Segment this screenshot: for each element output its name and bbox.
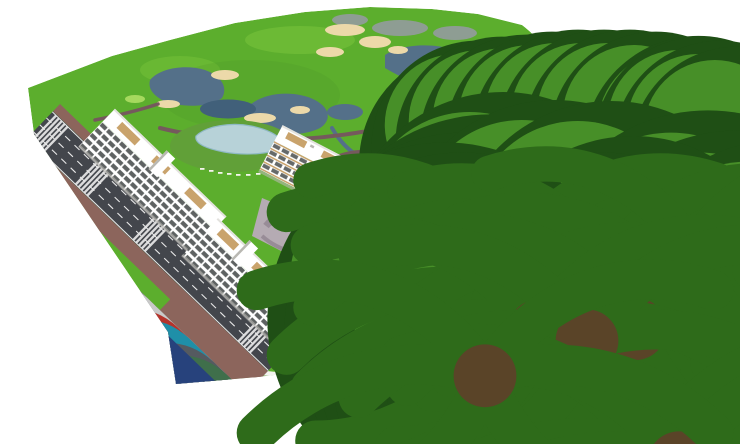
sun-lounger	[256, 173, 261, 175]
sun-lounger	[236, 174, 241, 176]
gray-waste-area	[372, 20, 428, 36]
sand-bunker	[211, 70, 239, 80]
sand-bunker	[316, 47, 344, 57]
gray-waste-area	[433, 26, 477, 40]
pond-center	[327, 104, 363, 120]
sun-lounger	[246, 174, 251, 176]
sun-lounger	[218, 172, 223, 174]
sun-lounger	[227, 173, 232, 175]
render-canvas	[0, 0, 740, 444]
sun-lounger	[209, 170, 214, 172]
sand-bunker	[290, 106, 310, 114]
sand-bunker	[325, 24, 365, 36]
sand-bunker	[359, 36, 391, 48]
aerial-render	[0, 0, 740, 444]
sand-bunker	[388, 46, 408, 54]
sun-lounger	[200, 168, 205, 170]
green-patch	[125, 95, 145, 103]
palm-trees	[257, 164, 740, 444]
